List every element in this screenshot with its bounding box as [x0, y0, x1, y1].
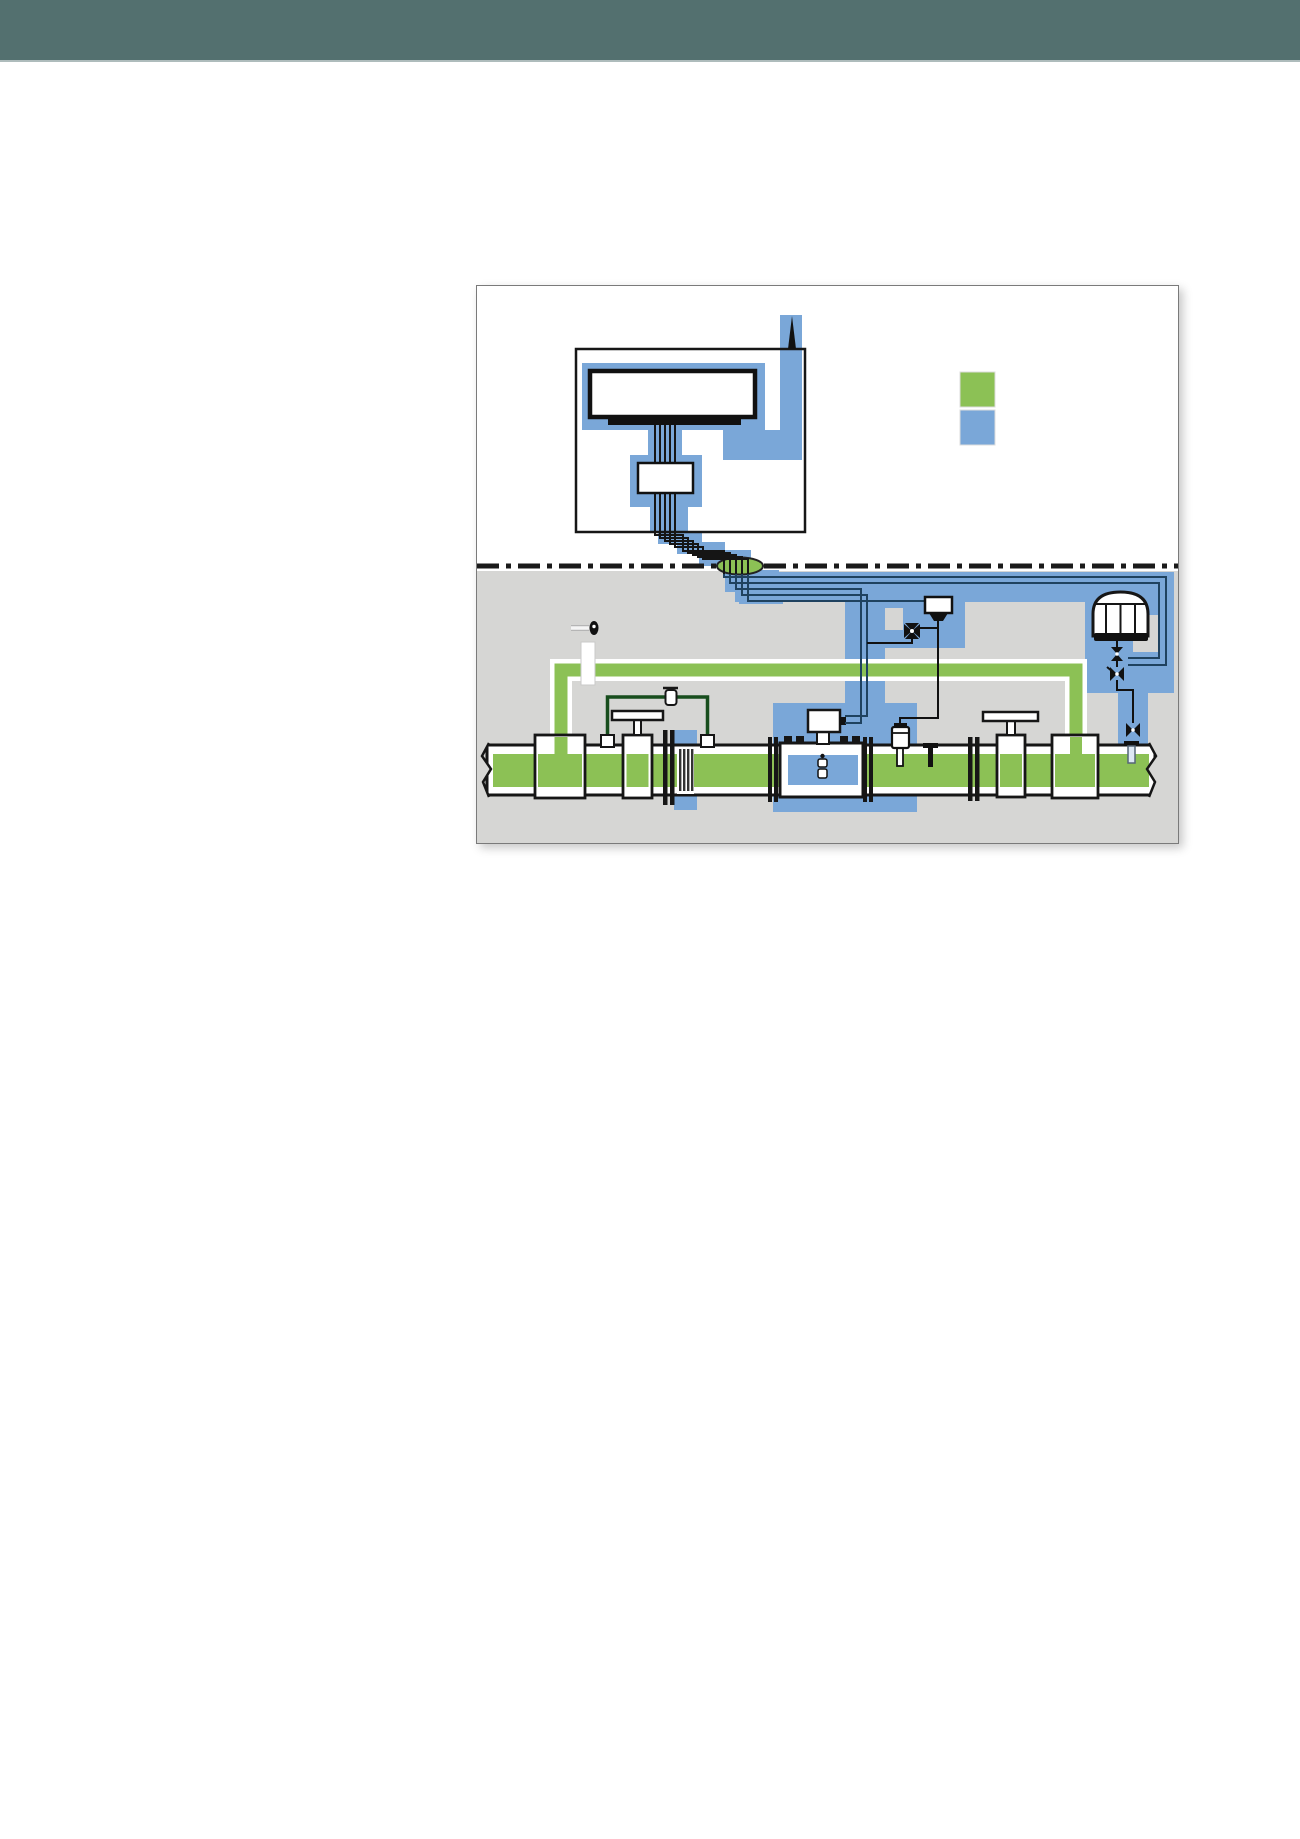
- filter-separator-right: [1052, 735, 1098, 798]
- legend-blue-swatch: [960, 410, 995, 445]
- flow-computer-icon: [638, 463, 693, 493]
- flange: [968, 737, 973, 801]
- diagram-figure: [476, 285, 1179, 844]
- gauge-icon: [925, 597, 952, 613]
- flow-conditioner-icon: [677, 747, 694, 794]
- monitor-icon: [590, 371, 755, 425]
- flange: [663, 730, 668, 805]
- gas-chromatograph-icon: [1093, 592, 1148, 641]
- legend-green-swatch: [960, 372, 995, 407]
- flange: [975, 737, 980, 801]
- filter-separator-left: [535, 735, 585, 798]
- sample-probe-icon: [1128, 746, 1135, 763]
- gauge-inset: [885, 608, 903, 630]
- metering-station-schematic: [477, 286, 1178, 843]
- ultrasonic-meter-icon: [768, 736, 873, 802]
- header-bar: [0, 0, 1300, 62]
- densitometer-icon: [666, 690, 677, 705]
- flange: [670, 730, 675, 805]
- filter-icon: [581, 642, 595, 685]
- legend: [960, 372, 995, 445]
